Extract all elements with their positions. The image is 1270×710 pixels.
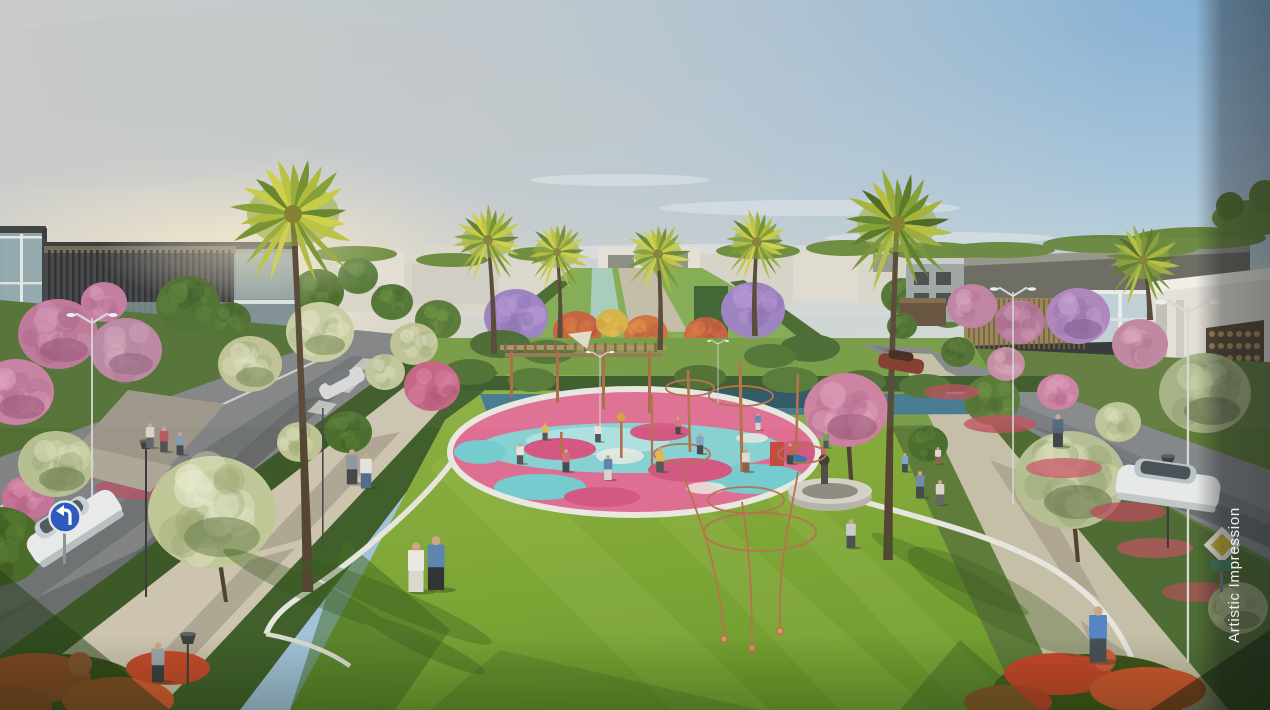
- svg-text:Artistic Impression: Artistic Impression: [1226, 507, 1243, 643]
